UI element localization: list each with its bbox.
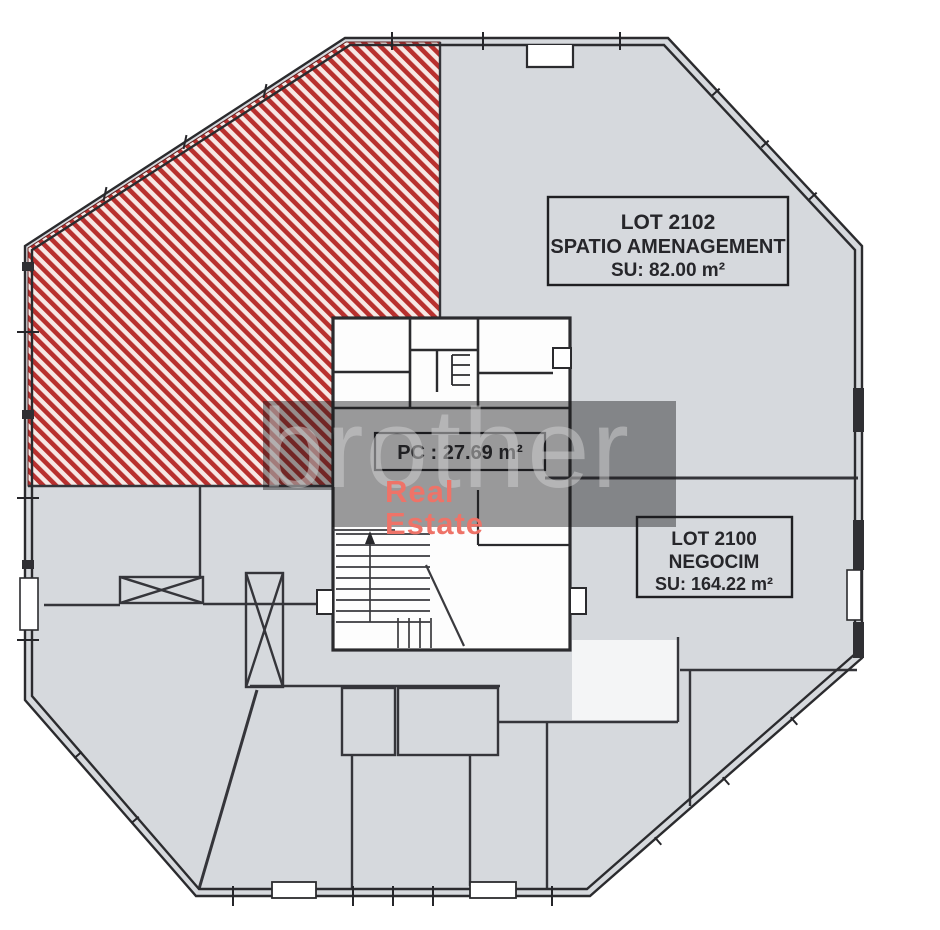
left-door <box>20 578 38 630</box>
lot-2100-area: SU: 164.22 m² <box>655 574 773 594</box>
brand-line-1: Real <box>385 474 454 509</box>
lot-2100-id: LOT 2100 <box>671 529 757 550</box>
lot-2102-area: SU: 82.00 m² <box>611 260 725 281</box>
bottom-door-1 <box>272 882 316 898</box>
top-door-recess <box>527 45 573 67</box>
bottom-door-2 <box>470 882 516 898</box>
lot-2102-id: LOT 2102 <box>621 211 716 234</box>
right-door <box>847 570 861 620</box>
brand-line-2: Estate <box>385 506 484 541</box>
lot-2102-name: SPATIO AMENAGEMENT <box>550 236 785 258</box>
floor-plan-canvas: LOT 2102 SPATIO AMENAGEMENT SU: 82.00 m²… <box>0 0 940 930</box>
lot-2100-name: NEGOCIM <box>669 552 760 573</box>
